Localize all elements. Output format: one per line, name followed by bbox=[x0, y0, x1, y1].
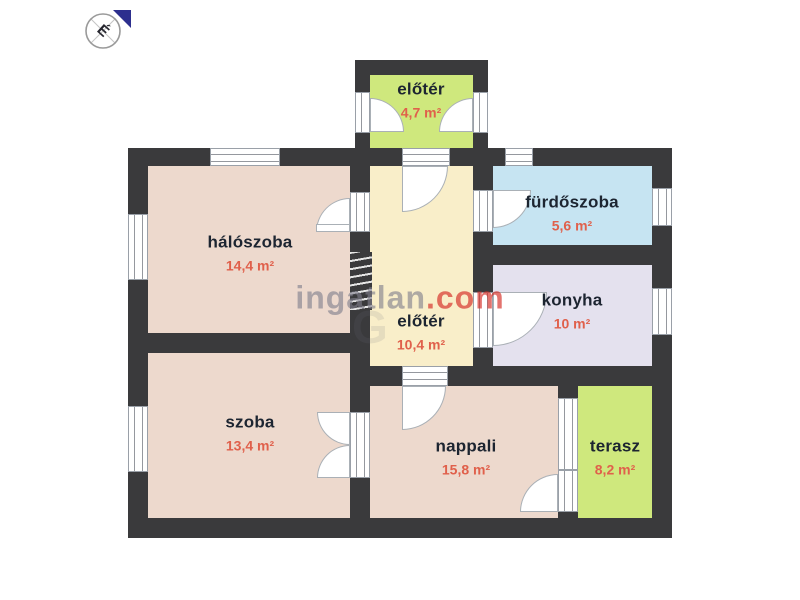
door-leaf bbox=[316, 224, 350, 232]
window bbox=[210, 148, 280, 166]
door-opening bbox=[402, 148, 450, 166]
watermark-tld: .com bbox=[426, 280, 505, 316]
watermark: ingatlan.com bbox=[295, 280, 504, 317]
wall bbox=[128, 148, 148, 538]
wall bbox=[128, 518, 672, 538]
watermark-brand: ingatlan bbox=[295, 280, 426, 316]
room-terrace bbox=[578, 386, 652, 518]
wall bbox=[493, 245, 652, 265]
window bbox=[505, 148, 533, 166]
door-opening bbox=[350, 192, 370, 232]
door-opening bbox=[473, 190, 493, 232]
door-opening bbox=[558, 470, 578, 512]
compass-icon: É bbox=[84, 8, 134, 54]
window bbox=[652, 288, 672, 335]
window bbox=[652, 188, 672, 226]
window bbox=[558, 398, 578, 470]
wall bbox=[148, 333, 350, 353]
floor-plan-canvas: É előtér 4, bbox=[0, 0, 800, 600]
room-szoba bbox=[148, 353, 350, 518]
door-opening bbox=[402, 366, 448, 386]
window bbox=[128, 214, 148, 280]
wall bbox=[355, 60, 488, 75]
window bbox=[128, 406, 148, 472]
window bbox=[355, 92, 370, 133]
door-opening bbox=[350, 412, 370, 478]
window bbox=[473, 92, 488, 133]
